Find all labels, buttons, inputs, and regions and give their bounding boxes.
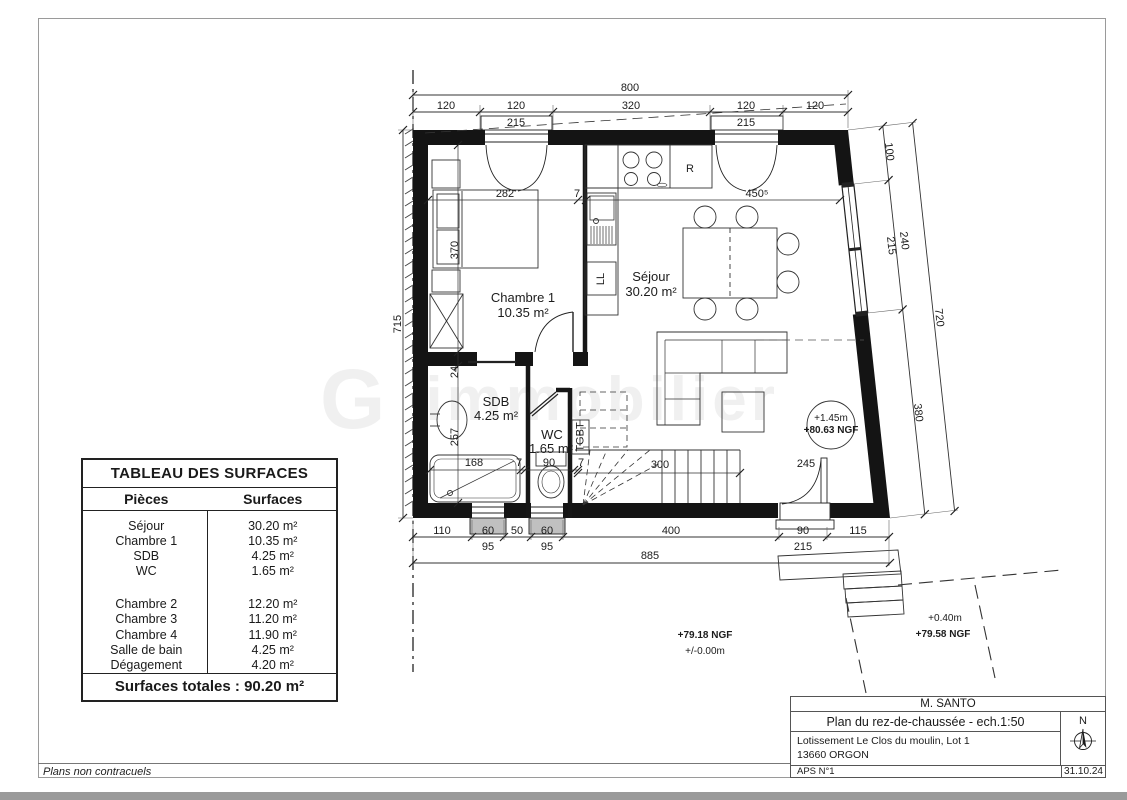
surface-table-header: Pièces Surfaces [83,488,336,511]
table-row: Chambre 110.35 m² [83,533,336,548]
svg-text:282: 282 [496,188,514,200]
table-row: Dégagement4.20 m² [83,657,336,672]
stair-treads [662,450,727,503]
glazed-bay [842,184,868,314]
address-line1: Lotissement Le Clos du moulin, Lot 1 [797,734,1054,748]
svg-text:24: 24 [449,366,461,378]
svg-text:720: 720 [932,308,946,328]
svg-text:245: 245 [797,458,815,470]
level-upper-ngf: +80.63 NGF [804,425,859,436]
room-sdb-area: 4.25 m² [474,408,519,423]
col-surfaces: Surfaces [210,488,337,510]
svg-text:320: 320 [622,100,640,112]
chair [777,233,799,255]
nightstand [432,160,460,188]
table-row: Salle de bain4.25 m² [83,642,336,657]
svg-text:90: 90 [543,457,555,469]
svg-text:7: 7 [574,188,580,200]
table-row: SDB4.25 m² [83,548,336,563]
svg-text:7: 7 [578,457,584,469]
room-wc: WC [541,427,563,442]
svg-text:370: 370 [449,241,461,259]
table-row: Séjour30.20 m² [83,518,336,533]
dim-top-total: 800 [621,82,639,94]
page-edge-shadow [0,792,1127,800]
level-ground-ngf: +79.18 NGF [678,630,733,641]
svg-text:215: 215 [794,541,812,553]
coffee-table [722,392,764,432]
interior-walls [428,352,588,366]
svg-text:95: 95 [482,541,494,553]
footer-divider [38,763,790,764]
dim-bottom-total: 885 [641,550,659,562]
chair [777,271,799,293]
svg-text:120: 120 [806,100,824,112]
hob-burner [623,152,639,168]
svg-text:215: 215 [884,236,898,256]
surface-table: TABLEAU DES SURFACES Pièces Surfaces Séj… [81,458,338,702]
svg-text:168: 168 [465,457,483,469]
chair [694,206,716,228]
chair [736,298,758,320]
svg-text:257: 257 [449,428,461,446]
room-wc-area: 1.65 m² [529,441,574,456]
svg-text:120: 120 [507,100,525,112]
dimension-lines [403,95,955,563]
svg-text:50: 50 [511,525,523,537]
chair [736,206,758,228]
fridge-label: R [686,163,694,175]
svg-text:240: 240 [897,231,911,251]
table-row: Chambre 311.20 m² [83,612,336,627]
svg-text:7: 7 [516,457,522,469]
svg-text:120: 120 [737,100,755,112]
north-arrow-icon: N [1066,712,1100,758]
room-chambre1-area: 10.35 m² [497,305,549,320]
north-letter: N [1079,715,1087,727]
column-divider [207,511,208,673]
level-upper-rel: +1.45m [814,413,848,424]
svg-text:90: 90 [797,525,809,537]
footer-note: Plans non contracuels [43,766,151,778]
svg-text:60: 60 [482,525,494,537]
wc-door [528,392,558,416]
washing-machine-label: LL [595,273,607,285]
hob-burner [625,173,638,186]
svg-text:110: 110 [433,525,451,537]
phase-label: APS N°1 [791,766,1062,777]
room-sejour-area: 30.20 m² [625,284,677,299]
hob-burner [646,152,662,168]
pillow [437,194,459,228]
table-row: Chambre 411.90 m² [83,627,336,642]
room-chambre1: Chambre 1 [491,290,555,305]
room-sdb: SDB [483,394,510,409]
surface-table-total: Surfaces totales : 90.20 m² [83,673,336,700]
svg-text:715: 715 [392,315,404,333]
table-row: WC1.65 m² [83,563,336,578]
staircase [575,392,740,505]
svg-text:120: 120 [437,100,455,112]
wall-hatch [405,129,413,506]
project-address: Lotissement Le Clos du moulin, Lot 1 136… [791,732,1060,764]
col-pieces: Pièces [83,488,210,510]
svg-text:450⁵: 450⁵ [746,188,769,200]
nightstand [432,270,460,292]
room-sejour: Séjour [632,269,670,284]
svg-text:115: 115 [849,525,867,537]
living-furniture [657,206,799,432]
svg-text:300: 300 [651,459,669,471]
svg-text:215: 215 [507,117,525,129]
table-row: Chambre 212.20 m² [83,597,336,612]
level-terrace-rel: +0.40m [928,613,962,624]
terrace-steps [778,550,904,617]
north-compass: N [1061,712,1105,764]
level-terrace-ngf: +79.58 NGF [916,629,971,640]
svg-text:380: 380 [911,403,925,423]
svg-text:100: 100 [882,142,896,162]
svg-text:215: 215 [737,117,755,129]
date-label: 31.10.24 [1062,766,1105,777]
title-block: M. SANTO Plan du rez-de-chaussée - ech.1… [790,696,1106,778]
svg-text:60: 60 [541,525,553,537]
level-ground-rel: +/-0.00m [685,646,725,657]
surface-table-body: Séjour30.20 m² Chambre 110.35 m² SDB4.25… [83,511,336,673]
table-group-gap [83,579,336,597]
electrical-panel: TGBT [572,420,589,454]
svg-text:95: 95 [541,541,553,553]
sink-drainer [591,226,612,244]
architectural-sheet: { "watermark": { "logo": "G", "text": "i… [0,0,1127,800]
client-name: M. SANTO [791,697,1105,712]
chair [694,298,716,320]
address-line2: 13660 ORGON [797,748,1054,762]
drawing-title: Plan du rez-de-chaussée - ech.1:50 [791,712,1060,732]
svg-text:400: 400 [662,525,680,537]
surface-table-title: TABLEAU DES SURFACES [83,460,336,488]
